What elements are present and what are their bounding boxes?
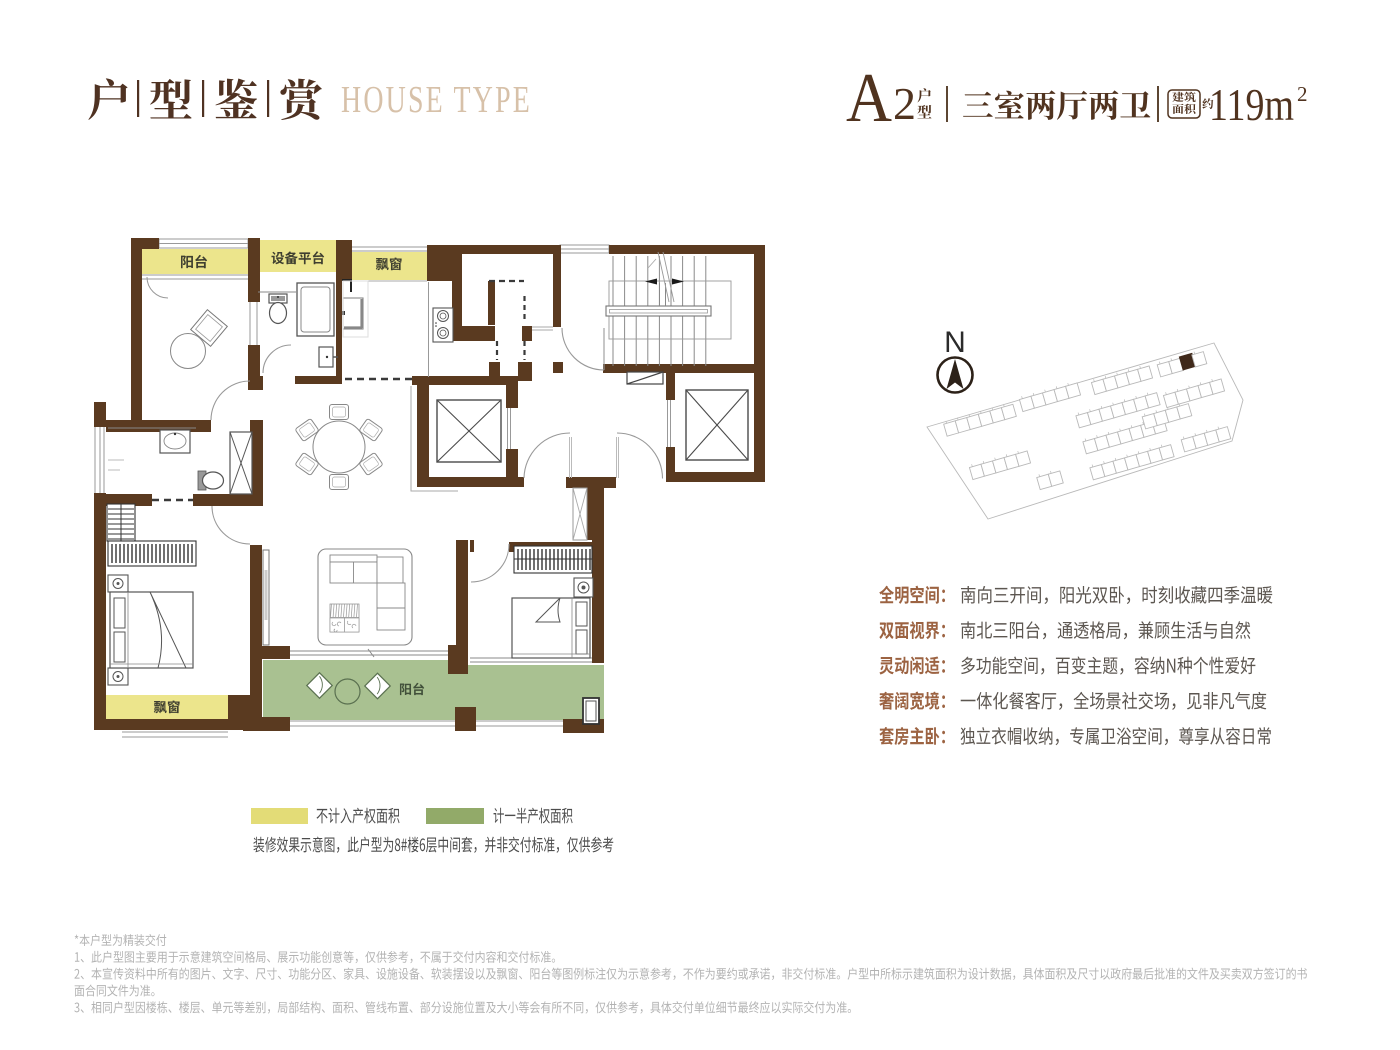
svg-text:2: 2 [1297,82,1308,106]
svg-text:HOUSE TYPE: HOUSE TYPE [341,79,532,121]
svg-text:119m: 119m [1209,79,1294,130]
svg-text:2: 2 [893,78,916,129]
svg-text:A: A [846,60,892,137]
svg-text:N: N [944,326,966,359]
